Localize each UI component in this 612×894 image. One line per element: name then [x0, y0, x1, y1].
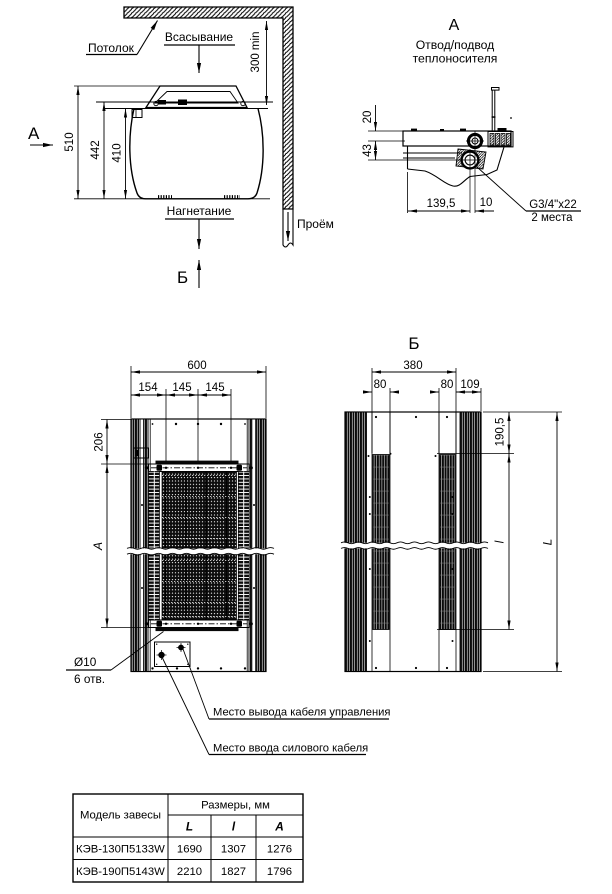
svg-text:А: А [28, 124, 40, 143]
svg-text:A: A [274, 820, 284, 834]
svg-text:154: 154 [138, 382, 158, 394]
svg-text:L: L [186, 820, 193, 834]
svg-text:380: 380 [403, 360, 422, 372]
svg-text:Размеры, мм: Размеры, мм [201, 800, 270, 812]
svg-text:190,5: 190,5 [495, 418, 507, 447]
svg-text:80: 80 [374, 379, 387, 391]
svg-text:206: 206 [94, 432, 106, 451]
svg-text:145: 145 [172, 382, 191, 394]
svg-text:1276: 1276 [267, 844, 292, 856]
svg-text:Место ввода силового кабеля: Место ввода силового кабеля [213, 743, 368, 755]
svg-text:1827: 1827 [221, 866, 246, 878]
svg-text:80: 80 [441, 379, 454, 391]
svg-text:l: l [493, 540, 507, 543]
svg-text:Б: Б [408, 334, 419, 353]
svg-text:теплоносителя: теплоносителя [413, 52, 498, 66]
svg-text:Потолок: Потолок [88, 41, 135, 55]
svg-text:Нагнетание: Нагнетание [167, 204, 232, 218]
svg-text:Проём: Проём [297, 217, 334, 231]
svg-text:1796: 1796 [267, 866, 292, 878]
svg-text:109: 109 [460, 379, 479, 391]
svg-text:600: 600 [187, 360, 206, 372]
svg-text:Ø10: Ø10 [74, 655, 97, 669]
svg-text:А: А [449, 17, 460, 34]
svg-text:Модель завесы: Модель завесы [80, 810, 161, 822]
svg-text:145: 145 [205, 382, 224, 394]
svg-text:139,5: 139,5 [427, 198, 456, 210]
svg-text:410: 410 [112, 143, 124, 162]
svg-text:КЭВ-130П5133W: КЭВ-130П5133W [76, 844, 165, 856]
svg-text:Отвод/подвод: Отвод/подвод [416, 38, 495, 52]
svg-text:L: L [541, 539, 555, 546]
svg-text:Всасывание: Всасывание [165, 30, 234, 44]
svg-text:2210: 2210 [177, 866, 202, 878]
svg-text:КЭВ-190П5143W: КЭВ-190П5143W [76, 866, 165, 878]
svg-text:10: 10 [480, 197, 493, 209]
svg-text:20: 20 [362, 111, 374, 124]
svg-text:G3/4"x22: G3/4"x22 [529, 199, 577, 211]
svg-text:6 отв.: 6 отв. [74, 672, 105, 686]
svg-text:442: 442 [90, 140, 102, 159]
svg-text:1307: 1307 [221, 844, 246, 856]
svg-text:Место вывода кабеля управления: Место вывода кабеля управления [213, 707, 390, 719]
svg-text:Б: Б [177, 268, 188, 287]
svg-text:A: A [91, 542, 105, 551]
svg-text:2 места: 2 места [531, 212, 573, 224]
svg-text:300 min: 300 min [250, 32, 262, 73]
svg-text:1690: 1690 [177, 844, 202, 856]
svg-text:510: 510 [64, 132, 76, 151]
svg-text:43: 43 [362, 144, 374, 157]
